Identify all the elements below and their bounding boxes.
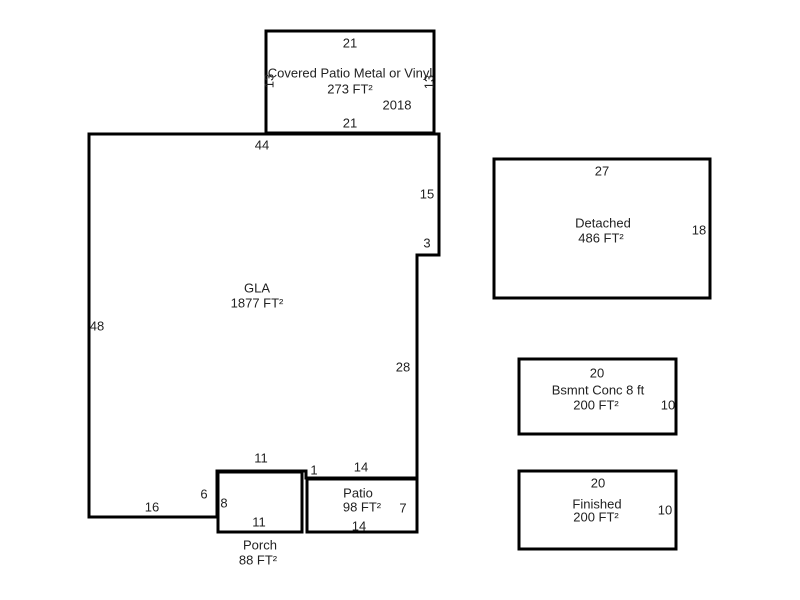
gla-dim-porch-step: 6 — [200, 488, 207, 501]
patio-dim-right: 7 — [399, 502, 406, 515]
gla-dim-right-upper: 15 — [420, 188, 434, 201]
patio-name: Patio — [343, 487, 373, 500]
covered-patio-dim-top: 21 — [343, 37, 357, 50]
basement-dim-right: 10 — [661, 399, 675, 412]
finished-dim-right: 10 — [658, 504, 672, 517]
covered-patio-dim-bottom: 21 — [343, 117, 357, 130]
gla-area: 1877 FT² — [231, 297, 284, 310]
basement-name: Bsmnt Conc 8 ft — [552, 384, 644, 397]
covered-patio-dim-right: 13 — [423, 75, 436, 89]
porch-dim-left: 8 — [220, 497, 227, 510]
basement-dim-top: 20 — [590, 367, 604, 380]
covered-patio-dim-left: 13 — [263, 74, 276, 88]
gla-dim-porch-top: 11 — [254, 452, 268, 465]
finished-dim-top: 20 — [591, 477, 605, 490]
basement-area: 200 FT² — [573, 399, 619, 412]
gla-dim-step: 3 — [423, 237, 430, 250]
gla-dim-bottom-left: 16 — [145, 501, 159, 514]
covered-patio-name: Covered Patio Metal or Vinyl — [268, 67, 433, 80]
detached-area: 486 FT² — [578, 232, 624, 245]
porch-dim-bottom: 11 — [252, 516, 266, 529]
gla-name: GLA — [244, 282, 270, 295]
gla-dim-patio-step: 1 — [310, 464, 317, 477]
patio-dim-bottom: 14 — [352, 520, 366, 533]
detached-dim-right: 18 — [692, 224, 706, 237]
gla-dim-top: 44 — [255, 139, 269, 152]
detached-dim-top: 27 — [595, 165, 609, 178]
detached-name: Detached — [575, 217, 631, 230]
gla-dim-patio-top: 14 — [354, 461, 368, 474]
patio-area: 98 FT² — [343, 501, 381, 514]
floorplan-sketch: 21 Covered Patio Metal or Vinyl 13 273 F… — [0, 0, 800, 600]
gla-dim-right-lower: 28 — [396, 361, 410, 374]
porch-area: 88 FT² — [239, 554, 277, 567]
gla-dim-left: 48 — [90, 320, 104, 333]
covered-patio-area: 273 FT² — [327, 83, 373, 96]
finished-area: 200 FT² — [573, 511, 619, 524]
porch-name: Porch — [243, 539, 277, 552]
covered-patio-year: 2018 — [383, 99, 412, 112]
